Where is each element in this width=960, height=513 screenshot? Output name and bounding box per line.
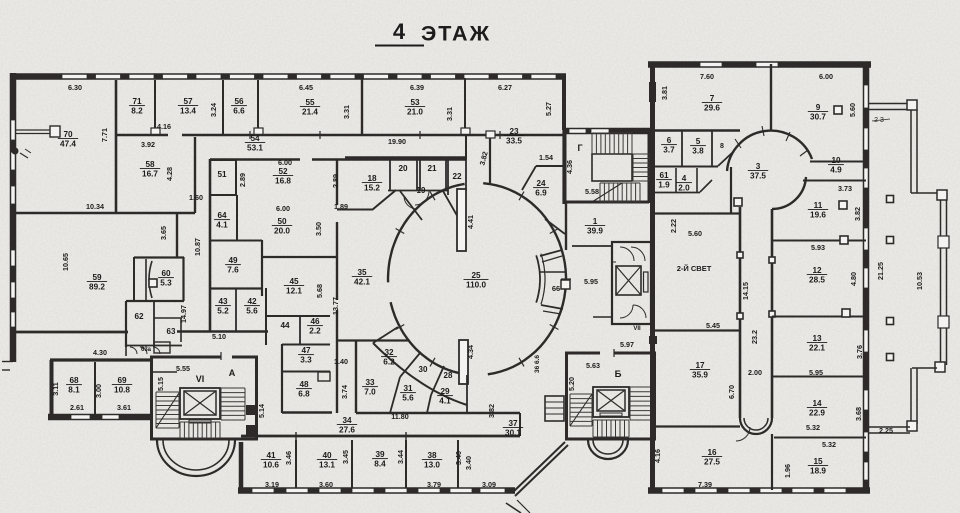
svg-text:13.0: 13.0	[424, 460, 440, 469]
svg-text:A: A	[229, 368, 236, 378]
svg-text:4.36: 4.36	[565, 160, 574, 174]
svg-text:10.87: 10.87	[193, 238, 202, 256]
svg-text:3.79: 3.79	[427, 480, 441, 489]
svg-text:4.16: 4.16	[653, 449, 662, 463]
svg-text:43: 43	[218, 297, 228, 306]
svg-text:1.60: 1.60	[189, 193, 203, 202]
svg-text:14: 14	[812, 399, 822, 408]
svg-text:3.31: 3.31	[342, 105, 351, 119]
svg-text:39: 39	[375, 450, 385, 459]
svg-text:5.95: 5.95	[809, 368, 823, 377]
svg-text:48: 48	[299, 380, 309, 389]
svg-text:71: 71	[132, 97, 142, 106]
svg-text:61: 61	[659, 171, 669, 180]
svg-text:3.82: 3.82	[487, 404, 496, 418]
svg-text:2.00: 2.00	[748, 368, 762, 377]
svg-text:15: 15	[813, 457, 823, 466]
svg-text:47: 47	[301, 346, 311, 355]
svg-text:5.14: 5.14	[257, 404, 266, 418]
svg-text:3.8: 3.8	[692, 146, 704, 155]
svg-text:33.5: 33.5	[506, 136, 522, 145]
svg-text:3.24: 3.24	[209, 103, 218, 117]
svg-text:5.45: 5.45	[706, 321, 720, 330]
svg-text:16.8: 16.8	[275, 176, 291, 185]
svg-text:27.5: 27.5	[704, 457, 720, 466]
svg-text:13.1: 13.1	[319, 460, 335, 469]
svg-text:9: 9	[816, 103, 821, 112]
svg-text:42.1: 42.1	[354, 277, 370, 286]
svg-text:55: 55	[305, 98, 315, 107]
svg-text:3.11: 3.11	[51, 382, 60, 396]
svg-text:32: 32	[384, 348, 394, 357]
svg-text:3.09: 3.09	[482, 480, 496, 489]
svg-text:10.6: 10.6	[263, 460, 279, 469]
svg-text:31: 31	[403, 384, 413, 393]
svg-text:5.63: 5.63	[586, 361, 600, 370]
svg-text:46: 46	[310, 317, 320, 326]
svg-text:1.54: 1.54	[539, 153, 553, 162]
svg-text:5.55: 5.55	[176, 364, 190, 373]
svg-text:6.70: 6.70	[727, 385, 736, 399]
svg-text:19: 19	[417, 186, 426, 195]
svg-text:30: 30	[419, 365, 428, 374]
svg-text:30.1: 30.1	[505, 428, 521, 437]
svg-text:3.31: 3.31	[445, 107, 454, 121]
svg-text:5.93: 5.93	[811, 243, 825, 252]
svg-text:3.3: 3.3	[300, 355, 312, 364]
svg-text:4.16: 4.16	[157, 122, 171, 131]
svg-text:16.7: 16.7	[142, 169, 158, 178]
svg-text:34: 34	[342, 416, 352, 425]
svg-text:3.65: 3.65	[159, 226, 168, 240]
svg-text:47.4: 47.4	[60, 139, 76, 148]
svg-text:38: 38	[427, 451, 437, 460]
svg-text:6.45: 6.45	[299, 83, 313, 92]
svg-text:6.2: 6.2	[383, 357, 395, 366]
svg-text:1: 1	[593, 217, 598, 226]
svg-text:6.30: 6.30	[68, 83, 82, 92]
svg-text:12.1: 12.1	[286, 286, 302, 295]
svg-text:11: 11	[814, 201, 823, 210]
svg-text:6.9: 6.9	[535, 188, 547, 197]
svg-text:5.6: 5.6	[402, 393, 414, 402]
svg-text:3.76: 3.76	[855, 345, 864, 359]
svg-text:22.9: 22.9	[809, 408, 825, 417]
svg-text:35: 35	[357, 268, 367, 277]
svg-text:33: 33	[365, 378, 375, 387]
svg-text:8.1: 8.1	[68, 385, 80, 394]
svg-text:37.5: 37.5	[750, 171, 766, 180]
svg-text:64: 64	[217, 211, 227, 220]
svg-text:23.2: 23.2	[750, 330, 759, 344]
svg-text:VI: VI	[196, 374, 205, 384]
svg-text:8: 8	[720, 143, 724, 150]
svg-text:5.6: 5.6	[246, 306, 258, 315]
svg-text:3.61: 3.61	[117, 403, 131, 412]
svg-text:ЭТАЖ: ЭТАЖ	[421, 22, 491, 46]
svg-text:5.58: 5.58	[585, 187, 599, 196]
svg-text:36 6.6: 36 6.6	[534, 355, 541, 373]
svg-text:4.1: 4.1	[439, 396, 451, 405]
svg-text:69: 69	[117, 376, 127, 385]
svg-text:5.97: 5.97	[620, 340, 634, 349]
svg-text:40: 40	[322, 451, 332, 460]
svg-text:5: 5	[696, 137, 701, 146]
svg-text:4.34: 4.34	[466, 345, 475, 359]
svg-text:6.39: 6.39	[410, 83, 424, 92]
svg-text:3.68: 3.68	[854, 407, 863, 421]
svg-text:3.92: 3.92	[141, 140, 155, 149]
svg-text:10.53: 10.53	[915, 272, 924, 290]
svg-text:5.68: 5.68	[315, 284, 324, 298]
svg-text:2.25: 2.25	[879, 426, 893, 435]
svg-text:4.41: 4.41	[466, 215, 475, 229]
svg-text:3.40: 3.40	[464, 456, 473, 470]
svg-text:3.81: 3.81	[660, 86, 669, 100]
svg-text:8.2: 8.2	[131, 106, 143, 115]
svg-text:56: 56	[234, 97, 244, 106]
svg-text:3.19: 3.19	[265, 480, 279, 489]
svg-text:2.22: 2.22	[669, 219, 678, 233]
svg-text:11.80: 11.80	[391, 412, 409, 421]
svg-text:53.1: 53.1	[247, 143, 263, 152]
svg-text:19.6: 19.6	[810, 210, 826, 219]
svg-text:7: 7	[710, 94, 715, 103]
svg-text:7.0: 7.0	[364, 387, 376, 396]
svg-text:13: 13	[812, 334, 822, 343]
svg-text:3.44: 3.44	[396, 450, 405, 464]
svg-text:62: 62	[134, 312, 144, 321]
svg-text:2.61: 2.61	[70, 403, 84, 412]
svg-text:89.2: 89.2	[89, 282, 105, 291]
svg-text:2.2: 2.2	[309, 326, 321, 335]
svg-text:16: 16	[707, 448, 717, 457]
svg-text:1.9: 1.9	[658, 180, 670, 189]
svg-text:52: 52	[278, 167, 288, 176]
svg-text:5.2: 5.2	[217, 306, 229, 315]
svg-text:17: 17	[695, 361, 705, 370]
svg-text:10.65: 10.65	[61, 253, 70, 271]
svg-text:14.97: 14.97	[179, 305, 188, 323]
svg-text:3.7: 3.7	[663, 145, 675, 154]
svg-text:6.27: 6.27	[498, 83, 512, 92]
svg-text:2.89: 2.89	[238, 173, 247, 187]
svg-text:24: 24	[536, 179, 546, 188]
svg-text:15.2: 15.2	[364, 183, 380, 192]
svg-text:7.6: 7.6	[227, 265, 239, 274]
svg-text:22: 22	[452, 172, 462, 181]
svg-text:42: 42	[247, 297, 257, 306]
svg-text:70: 70	[63, 130, 73, 139]
svg-text:5.32: 5.32	[822, 440, 836, 449]
svg-text:6.00: 6.00	[278, 158, 292, 167]
svg-text:3.73: 3.73	[838, 184, 852, 193]
svg-text:110.0: 110.0	[466, 280, 486, 289]
svg-text:3.82: 3.82	[853, 207, 862, 221]
svg-text:21.25: 21.25	[876, 262, 885, 280]
svg-text:21.0: 21.0	[407, 107, 423, 116]
svg-text:2-Й СВЕТ: 2-Й СВЕТ	[677, 264, 712, 273]
svg-text:63a: 63a	[141, 347, 152, 353]
svg-text:4.80: 4.80	[849, 272, 858, 286]
svg-text:5.10: 5.10	[212, 332, 226, 341]
svg-text:29: 29	[440, 387, 450, 396]
svg-text:37: 37	[508, 419, 518, 428]
svg-text:3.60: 3.60	[319, 480, 333, 489]
svg-text:3.40: 3.40	[454, 451, 463, 465]
svg-text:5.3: 5.3	[160, 278, 172, 287]
svg-text:57: 57	[183, 97, 193, 106]
svg-text:4: 4	[393, 19, 406, 44]
svg-text:20.0: 20.0	[274, 226, 290, 235]
svg-text:50: 50	[277, 217, 287, 226]
svg-text:12: 12	[812, 266, 822, 275]
svg-text:4.1: 4.1	[216, 220, 228, 229]
svg-text:45: 45	[289, 277, 299, 286]
svg-text:1.89: 1.89	[334, 202, 348, 211]
svg-text:5.32: 5.32	[806, 423, 820, 432]
svg-text:7.60: 7.60	[700, 72, 714, 81]
svg-text:35.9: 35.9	[692, 370, 708, 379]
svg-text:4.28: 4.28	[165, 167, 174, 181]
svg-text:41: 41	[266, 451, 276, 460]
svg-text:3.46: 3.46	[284, 451, 293, 465]
svg-text:3.00: 3.00	[94, 384, 103, 398]
svg-text:58: 58	[145, 160, 155, 169]
svg-text:18.9: 18.9	[810, 466, 826, 475]
svg-text:29.6: 29.6	[704, 103, 720, 112]
svg-text:60: 60	[161, 269, 171, 278]
svg-text:6.6: 6.6	[233, 106, 245, 115]
svg-text:5.60: 5.60	[848, 103, 857, 117]
svg-text:2.89: 2.89	[331, 174, 340, 188]
svg-text:27.6: 27.6	[339, 425, 355, 434]
svg-text:7.39: 7.39	[698, 480, 712, 489]
svg-text:4.30: 4.30	[93, 348, 107, 357]
svg-text:10.34: 10.34	[86, 202, 104, 211]
svg-text:1.96: 1.96	[783, 464, 792, 478]
svg-text:25: 25	[471, 271, 481, 280]
svg-text:4.9: 4.9	[830, 165, 842, 174]
svg-text:10: 10	[831, 156, 841, 165]
svg-text:28.5: 28.5	[809, 275, 825, 284]
svg-text:1.40: 1.40	[334, 357, 348, 366]
svg-text:44: 44	[280, 321, 290, 330]
svg-text:49: 49	[228, 256, 238, 265]
svg-text:5.95: 5.95	[584, 277, 598, 286]
svg-text:13.77: 13.77	[331, 297, 340, 315]
svg-text:2.0: 2.0	[678, 183, 690, 192]
svg-text:30.7: 30.7	[810, 112, 826, 121]
svg-text:5.15: 5.15	[156, 377, 165, 391]
svg-text:22.1: 22.1	[809, 343, 825, 352]
svg-text:3: 3	[756, 162, 761, 171]
svg-text:3.50: 3.50	[314, 222, 323, 236]
svg-text:6.8: 6.8	[298, 389, 310, 398]
svg-text:10.8: 10.8	[114, 385, 130, 394]
svg-text:59: 59	[92, 273, 102, 282]
svg-text:5.20: 5.20	[567, 377, 576, 391]
svg-text:13.4: 13.4	[180, 106, 196, 115]
svg-text:66: 66	[552, 284, 560, 293]
svg-text:Б: Б	[615, 369, 622, 380]
svg-text:6.00: 6.00	[819, 72, 833, 81]
svg-text:VII: VII	[633, 326, 641, 332]
svg-text:28: 28	[444, 371, 453, 380]
svg-text:6: 6	[667, 136, 672, 145]
svg-text:6.00: 6.00	[276, 204, 290, 213]
svg-text:14.15: 14.15	[741, 282, 750, 300]
svg-text:21: 21	[427, 164, 437, 173]
svg-text:5.60: 5.60	[688, 229, 702, 238]
svg-text:7.71: 7.71	[100, 128, 109, 142]
svg-text:68: 68	[69, 376, 79, 385]
svg-text:4: 4	[682, 174, 687, 183]
svg-text:54: 54	[250, 134, 260, 143]
svg-text:39.9: 39.9	[587, 226, 603, 235]
svg-text:3.45: 3.45	[341, 450, 350, 464]
svg-text:21.4: 21.4	[302, 107, 318, 116]
svg-text:8.4: 8.4	[374, 459, 386, 468]
svg-text:53: 53	[410, 98, 420, 107]
svg-text:23: 23	[509, 127, 519, 136]
svg-text:3.74: 3.74	[340, 385, 349, 399]
svg-text:18: 18	[367, 174, 377, 183]
svg-text:20: 20	[398, 164, 408, 173]
svg-text:51: 51	[217, 170, 227, 179]
svg-text:Г: Г	[577, 143, 582, 153]
svg-text:63: 63	[167, 327, 176, 336]
svg-text:19.90: 19.90	[388, 137, 406, 146]
svg-text:5.27: 5.27	[544, 102, 553, 116]
